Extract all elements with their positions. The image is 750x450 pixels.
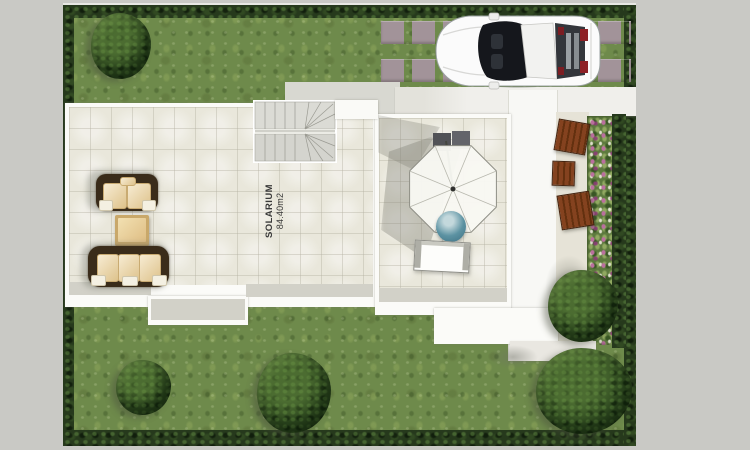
room-label: SOLARIUM 84.40m2 xyxy=(264,173,290,249)
car-taillight xyxy=(558,67,564,75)
winder-staircase xyxy=(253,100,337,163)
side-table xyxy=(413,240,471,274)
parasol-hub xyxy=(451,187,456,192)
round-chair xyxy=(436,211,466,242)
wood-deck-tile xyxy=(556,191,594,231)
car-seat xyxy=(491,34,503,49)
back-pillow xyxy=(120,177,136,186)
garden-shrub xyxy=(536,348,632,434)
screenshot-canvas: SOLARIUM 84.40m2 xyxy=(0,0,750,450)
car-taillight xyxy=(580,29,588,41)
terrace-step-edge xyxy=(246,284,373,297)
car-taillight xyxy=(580,61,588,73)
car-windshield xyxy=(478,21,528,81)
room-name-text: SOLARIUM xyxy=(264,173,275,249)
garden-shrub xyxy=(257,353,331,433)
terrace-step-floor xyxy=(151,299,245,320)
seat-pad xyxy=(122,276,138,286)
building-footprint xyxy=(434,308,558,344)
terrace-step-edge xyxy=(379,288,507,302)
ground-shadow xyxy=(488,345,538,369)
ottoman-top xyxy=(118,218,146,242)
wood-deck-tile xyxy=(552,161,576,187)
site-plan: SOLARIUM 84.40m2 xyxy=(63,3,636,446)
two-seat-sofa xyxy=(96,174,158,211)
sports-car xyxy=(432,12,604,90)
garden-shrub xyxy=(116,360,171,415)
engine-bar xyxy=(566,33,571,69)
table-end xyxy=(462,243,469,270)
ottoman-table xyxy=(115,215,149,246)
three-seat-sofa xyxy=(88,246,169,287)
armrest-pad xyxy=(152,275,167,286)
armrest-pad xyxy=(91,275,106,286)
table-edge xyxy=(422,241,464,247)
car-roof-panel xyxy=(521,23,557,79)
car-taillight xyxy=(558,27,564,35)
room-area-text: 84.40m2 xyxy=(275,173,285,249)
armrest-pad xyxy=(99,200,113,211)
stair-landing xyxy=(335,100,378,119)
car-seat xyxy=(491,54,503,69)
engine-bar xyxy=(574,33,579,69)
car-mirror xyxy=(489,13,499,20)
hedge-bottom xyxy=(63,430,636,446)
armrest-pad xyxy=(142,200,156,211)
garden-shrub xyxy=(91,13,151,79)
car-mirror xyxy=(489,82,499,89)
wood-deck-tile xyxy=(553,118,590,155)
